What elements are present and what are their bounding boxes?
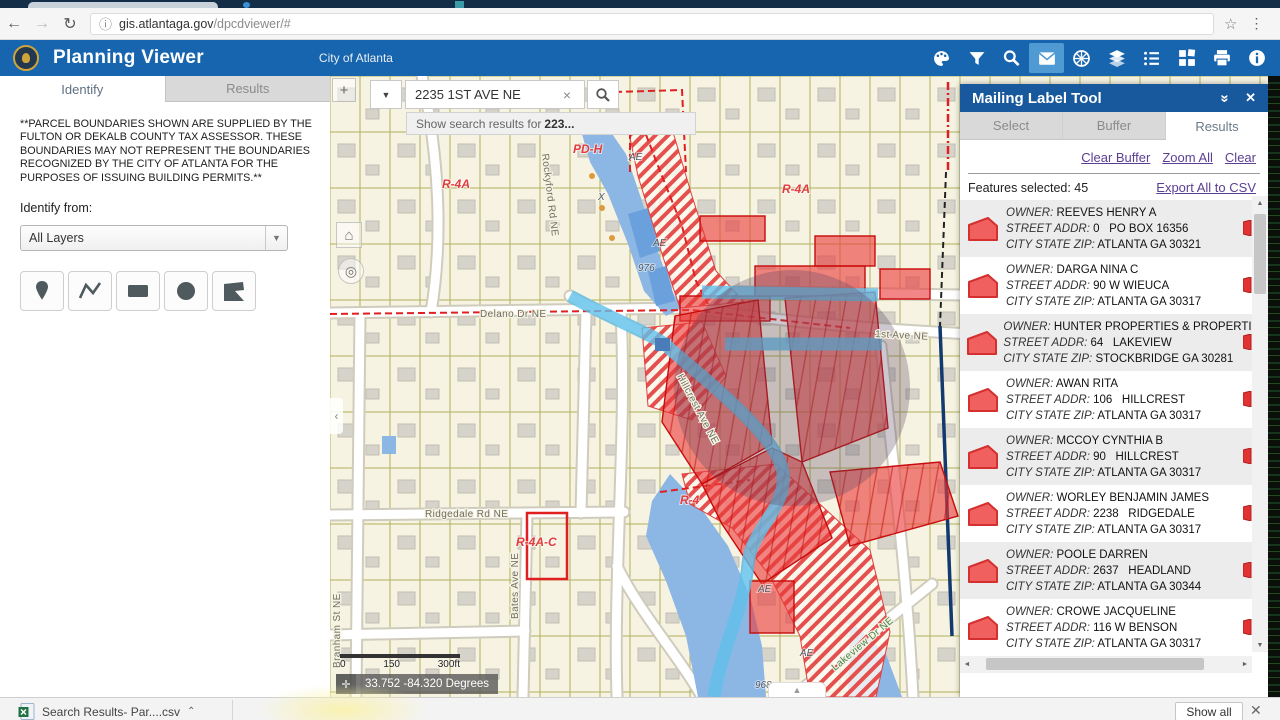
street-label: STREET ADDR: [1006, 622, 1090, 634]
city-value: STOCKBRIDGE GA 30281 [1095, 353, 1233, 365]
tab-identify[interactable]: Identify [0, 76, 165, 102]
mailing-label-tool-panel: Mailing Label Tool » ✕ Select Buffer Res… [960, 84, 1268, 697]
layers-dropdown-value: All Layers [29, 231, 84, 245]
scale-0: 0 [340, 659, 346, 670]
street-node [655, 338, 670, 351]
parcel-shape-icon [960, 485, 1006, 542]
owner-value: DARGA NINA C [1056, 264, 1138, 276]
owner-label: OWNER: [1003, 321, 1050, 333]
polygon-identify-tool[interactable] [212, 271, 256, 311]
owner-label: OWNER: [1006, 207, 1053, 219]
clear-buffer-link[interactable]: Clear Buffer [1081, 150, 1150, 165]
basemap-grid-icon[interactable] [1169, 43, 1204, 73]
layers-dropdown[interactable]: All Layers ▼ [20, 225, 288, 251]
owner-label: OWNER: [1006, 264, 1053, 276]
owner-value: AWAN RITA [1056, 378, 1118, 390]
svg-text:R-4: R-4 [680, 493, 700, 507]
street-label: STREET ADDR: [1006, 223, 1090, 235]
bookmark-star-icon[interactable]: ☆ [1224, 15, 1237, 33]
street-value: 2238 RIDGEDALE [1093, 508, 1195, 520]
result-row[interactable]: OWNER: AWAN RITA STREET ADDR: 106 HILLCR… [960, 371, 1252, 428]
row-mini-icon [1243, 619, 1252, 640]
suggestion-text: Show search results for [416, 117, 541, 131]
result-row[interactable]: OWNER: POOLE DARREN STREET ADDR: 2637 HE… [960, 542, 1252, 599]
owner-label: OWNER: [1006, 549, 1053, 561]
back-button[interactable]: ← [0, 15, 28, 33]
row-mini-icon [1243, 448, 1252, 469]
tab-results[interactable]: Results [165, 76, 331, 102]
polyline-identify-tool[interactable] [68, 271, 112, 311]
svg-text:AE: AE [628, 152, 643, 163]
download-bar-close-icon[interactable]: ✕ [1250, 702, 1262, 719]
street-label: STREET ADDR: [1006, 394, 1090, 406]
browser-menu-icon[interactable]: ⋮ [1249, 15, 1263, 32]
url-bar[interactable]: ⓘ gis.atlantaga.gov/dpcdviewer/# [90, 13, 1214, 35]
results-list: OWNER: REEVES HENRY A STREET ADDR: 0 PO … [960, 200, 1252, 656]
result-row[interactable]: OWNER: REEVES HENRY A STREET ADDR: 0 PO … [960, 200, 1252, 257]
coordinates-drag-icon[interactable]: ✛ [336, 674, 356, 694]
suggestion-term: 223... [544, 117, 574, 131]
search-suggestion[interactable]: Show search results for 223... [406, 112, 696, 135]
mailing-label-tabs: Select Buffer Results [960, 112, 1268, 140]
street-value: 90 W WIEUCA [1093, 280, 1169, 292]
owner-label: OWNER: [1006, 492, 1053, 504]
app-header: Planning Viewer City of Atlanta [0, 40, 1280, 76]
parcel-shape-icon [960, 257, 1006, 314]
owner-value: HUNTER PROPERTIES & PROPERTIES [1054, 321, 1252, 333]
divider [232, 700, 233, 720]
city-seal-logo [13, 45, 39, 71]
owner-value: MCCOY CYNTHIA B [1056, 435, 1163, 447]
street-value: 64 LAKEVIEW [1091, 337, 1172, 349]
row-mini-icon [1243, 505, 1252, 526]
mailing-label-tool-header: Mailing Label Tool » ✕ [960, 84, 1268, 112]
parcel-shape-icon [960, 599, 1006, 656]
zoom-in-button[interactable]: + [332, 78, 356, 102]
city-value: ATLANTA GA 30317 [1097, 296, 1201, 308]
app-title: Planning Viewer [53, 47, 204, 69]
owner-label: OWNER: [1006, 435, 1053, 447]
row-mini-icon [1243, 277, 1252, 298]
parcel-disclaimer-text: **PARCEL BOUNDARIES SHOWN ARE SUPPLIED B… [20, 118, 312, 185]
locate-button[interactable]: ◎ [338, 258, 364, 284]
zoom-all-link[interactable]: Zoom All [1162, 150, 1213, 165]
scroll-down-arrow[interactable]: ▼ [1252, 638, 1268, 652]
city-value: ATLANTA GA 30321 [1097, 239, 1201, 251]
attribution-collapse-button[interactable]: ▲ [768, 682, 826, 697]
panel-collapse-arrow[interactable]: ‹ [330, 398, 343, 434]
home-button[interactable]: ⌂ [336, 222, 362, 248]
tab-results[interactable]: Results [1166, 112, 1268, 140]
owner-value: REEVES HENRY A [1056, 207, 1156, 219]
city-value: ATLANTA GA 30317 [1097, 524, 1201, 536]
svg-text:AE: AE [652, 238, 667, 249]
owner-label: OWNER: [1006, 606, 1053, 618]
chevron-down-icon: ▼ [265, 226, 287, 250]
vertical-scrollbar[interactable]: ▲ ▼ [1252, 196, 1268, 652]
street-label: STREET ADDR: [1006, 508, 1090, 520]
page-info-icon[interactable]: ⓘ [99, 14, 112, 33]
svg-text:AE: AE [799, 648, 814, 659]
street-label: STREET ADDR: [1003, 337, 1087, 349]
search-icon[interactable] [994, 43, 1029, 73]
city-value: ATLANTA GA 30344 [1097, 581, 1201, 593]
row-mini-icon [1243, 334, 1252, 355]
city-label: CITY STATE ZIP: [1006, 638, 1095, 650]
row-mini-icon [1243, 220, 1252, 241]
search-submit-button[interactable] [587, 80, 619, 109]
browser-tab-strip [0, 0, 1280, 8]
street-label: STREET ADDR: [1006, 565, 1090, 577]
download-caret-icon[interactable]: ⌃ [187, 706, 195, 717]
mailing-label-tool-icon[interactable] [1029, 43, 1064, 73]
result-row[interactable]: OWNER: WORLEY BENJAMIN JAMES STREET ADDR… [960, 485, 1252, 542]
download-bar: Search Results- Par....csv ⌃ Show all ✕ [0, 697, 1280, 720]
city-value: ATLANTA GA 30317 [1097, 467, 1201, 479]
city-label: CITY STATE ZIP: [1006, 410, 1095, 422]
parcel-shape-icon [960, 428, 1006, 485]
url-path: /dpcdviewer/# [214, 17, 291, 31]
street-value: 90 HILLCREST [1093, 451, 1179, 463]
background-window-sliver [1268, 76, 1280, 697]
app-subtitle: City of Atlanta [319, 51, 393, 65]
forward-button[interactable]: → [28, 15, 56, 33]
row-mini-icon [1243, 562, 1252, 583]
search-clear-icon[interactable]: × [555, 87, 579, 103]
result-row[interactable]: OWNER: CROWE JACQUELINE STREET ADDR: 116… [960, 599, 1252, 656]
identify-panel-tabs: Identify Results [0, 76, 330, 102]
url-domain: gis.atlantaga.gov [119, 17, 214, 31]
identify-from-label: Identify from: [20, 201, 330, 215]
mailing-label-tool-title: Mailing Label Tool [972, 90, 1221, 107]
city-label: CITY STATE ZIP: [1006, 239, 1095, 251]
city-label: CITY STATE ZIP: [1003, 353, 1092, 365]
legend-list-icon[interactable] [1134, 43, 1169, 73]
street-label: STREET ADDR: [1006, 280, 1090, 292]
hscroll-thumb[interactable] [986, 658, 1204, 670]
parcel-shape-icon [960, 314, 1003, 371]
point-identify-tool[interactable] [20, 271, 64, 311]
search-source-dropdown[interactable]: ▼ [370, 80, 402, 109]
parcel-shape-icon [960, 542, 1006, 599]
tab-favicon-2 [455, 1, 464, 8]
wheel-icon[interactable] [1064, 43, 1099, 73]
parcel-shape-icon [960, 200, 1006, 257]
filter-icon[interactable] [959, 43, 994, 73]
street-label: STREET ADDR: [1006, 451, 1090, 463]
draw-palette-icon[interactable] [924, 43, 959, 73]
owner-value: POOLE DARREN [1056, 549, 1147, 561]
svg-text:R-4A: R-4A [442, 177, 470, 191]
svg-text:Delano Dr NE: Delano Dr NE [480, 309, 547, 320]
info-icon[interactable] [1239, 43, 1274, 73]
layers-icon[interactable] [1099, 43, 1134, 73]
scale-bar-line [340, 654, 460, 658]
city-label: CITY STATE ZIP: [1006, 581, 1095, 593]
street-value: 2637 HEADLAND [1093, 565, 1191, 577]
panel-close-icon[interactable]: ✕ [1245, 90, 1256, 106]
features-selected-count: Features selected: 45 [968, 181, 1088, 195]
scale-bar: 0 150 300ft [340, 654, 460, 670]
download-item[interactable]: Search Results- Par....csv ⌃ [18, 703, 195, 720]
city-label: CITY STATE ZIP: [1006, 467, 1095, 479]
header-toolbar [924, 40, 1274, 76]
browser-toolbar: ← → ↻ ⓘ gis.atlantaga.gov/dpcdviewer/# ☆… [0, 8, 1280, 40]
street-value: 0 PO BOX 16356 [1093, 223, 1188, 235]
excel-file-icon [18, 703, 35, 720]
svg-text:AE: AE [757, 584, 772, 595]
url-text: gis.atlantaga.gov/dpcdviewer/# [119, 17, 291, 31]
panel-collapse-icon[interactable]: » [1216, 94, 1233, 102]
city-value: ATLANTA GA 30317 [1097, 638, 1201, 650]
owner-value: CROWE JACQUELINE [1056, 606, 1176, 618]
tab-buffer[interactable]: Buffer [1063, 112, 1166, 140]
scale-150: 150 [383, 659, 400, 670]
owner-value: WORLEY BENJAMIN JAMES [1056, 492, 1209, 504]
download-filename: Search Results- Par....csv [42, 705, 180, 719]
circle-identify-tool[interactable] [164, 271, 208, 311]
identify-panel: Identify Results **PARCEL BOUNDARIES SHO… [0, 76, 330, 697]
results-actions: Clear Buffer Zoom All Clear [960, 140, 1268, 171]
svg-text:Ridgedale Rd NE: Ridgedale Rd NE [425, 509, 508, 520]
search-input[interactable] [415, 87, 555, 102]
scale-300: 300ft [438, 659, 460, 670]
buffer-circle [674, 270, 910, 506]
owner-label: OWNER: [1006, 378, 1053, 390]
coordinates-readout: 33.752 -84.320 Degrees [356, 674, 498, 694]
street-value: 116 W BENSON [1093, 622, 1177, 634]
scroll-left-arrow[interactable]: ◄ [960, 656, 974, 673]
rectangle-identify-tool[interactable] [116, 271, 160, 311]
parcel-shape-icon [960, 371, 1006, 428]
export-all-csv-link[interactable]: Export All to CSV [1156, 180, 1256, 195]
search-box: × [405, 80, 585, 109]
city-label: CITY STATE ZIP: [1006, 524, 1095, 536]
horizontal-scrollbar[interactable]: ◄ ► [960, 656, 1252, 673]
result-row[interactable]: OWNER: DARGA NINA C STREET ADDR: 90 W WI… [960, 257, 1252, 314]
scroll-thumb[interactable] [1254, 214, 1266, 294]
result-row[interactable]: OWNER: HUNTER PROPERTIES & PROPERTIES ST… [960, 314, 1252, 371]
show-all-downloads-button[interactable]: Show all [1175, 702, 1243, 720]
coordinates-widget: ✛ 33.752 -84.320 Degrees [336, 674, 498, 694]
svg-text:PD-H: PD-H [573, 142, 603, 156]
screen: ← → ↻ ⓘ gis.atlantaga.gov/dpcdviewer/# ☆… [0, 0, 1280, 720]
reload-button[interactable]: ↻ [56, 14, 84, 34]
result-row[interactable]: OWNER: MCCOY CYNTHIA B STREET ADDR: 90 H… [960, 428, 1252, 485]
svg-text:976: 976 [638, 263, 655, 274]
svg-text:X: X [597, 192, 605, 203]
svg-text:Bates Ave NE: Bates Ave NE [510, 553, 521, 619]
svg-text:R-4A-C: R-4A-C [516, 535, 557, 549]
scroll-up-arrow[interactable]: ▲ [1252, 196, 1268, 210]
svg-text:R-4A: R-4A [782, 182, 810, 196]
clear-link[interactable]: Clear [1225, 150, 1256, 165]
print-icon[interactable] [1204, 43, 1239, 73]
scroll-right-arrow[interactable]: ► [1238, 656, 1252, 673]
identify-tools [20, 271, 330, 311]
features-row: Features selected: 45 Export All to CSV [960, 174, 1268, 200]
street-value: 106 HILLCREST [1093, 394, 1185, 406]
row-mini-icon [1243, 391, 1252, 412]
city-value: ATLANTA GA 30317 [1097, 410, 1201, 422]
tab-select[interactable]: Select [960, 112, 1063, 140]
city-label: CITY STATE ZIP: [1006, 296, 1095, 308]
